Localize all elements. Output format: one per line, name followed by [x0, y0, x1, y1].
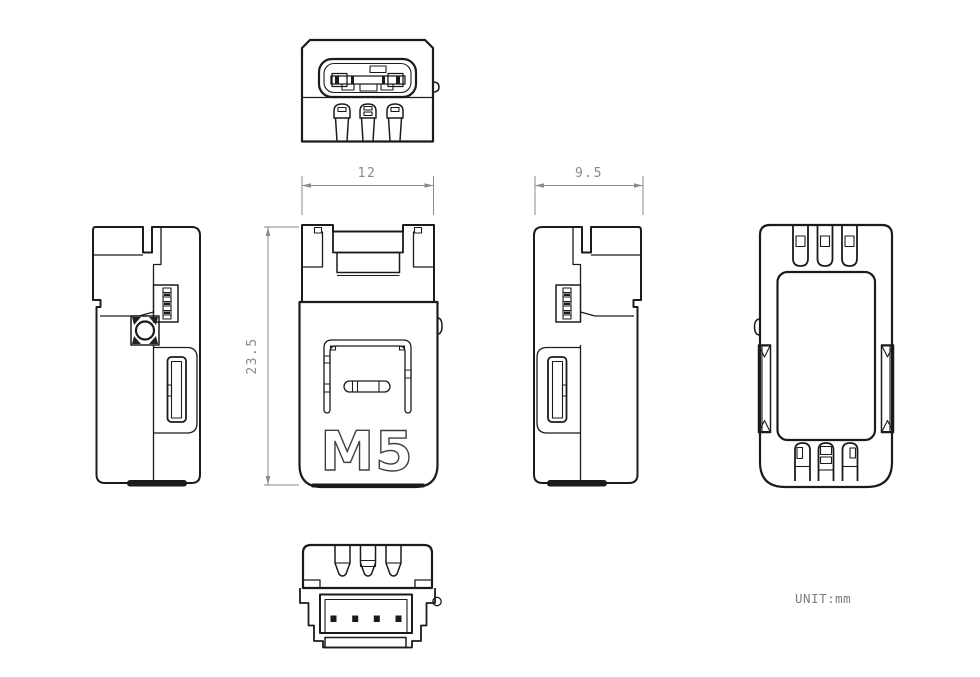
- left-side-view: [93, 227, 200, 487]
- back-top-slots: [793, 226, 857, 267]
- led-window-slot: [344, 381, 390, 392]
- button-frame: [324, 340, 411, 413]
- connector-block-side: [556, 285, 581, 322]
- back-bottom-tabs: [795, 443, 858, 481]
- grove-latch-slot: [325, 638, 406, 648]
- grove-connector: [300, 588, 441, 648]
- side-button-bump-bottom: [433, 597, 441, 605]
- bottom-view: [300, 545, 441, 648]
- side-slot-right: [548, 357, 567, 422]
- grove-pins: [331, 616, 402, 623]
- front-bottom-band: [311, 484, 425, 488]
- top-view: [302, 40, 439, 142]
- dimension-depth: 9.5: [535, 166, 643, 215]
- back-view: [755, 225, 894, 487]
- left-bottom-band: [127, 480, 187, 487]
- unit-label: UNIT:mm: [795, 591, 851, 606]
- pin-prongs-top: [334, 104, 403, 141]
- dimension-height-label: 23.5: [245, 337, 260, 374]
- front-view: M5: [300, 225, 443, 488]
- back-panel: [778, 272, 876, 440]
- pin-prongs-bottom: [335, 546, 401, 576]
- right-bottom-band: [547, 480, 607, 487]
- dimension-width-label: 12: [358, 166, 377, 181]
- side-button: [131, 316, 159, 345]
- usb-c-port-front: [333, 232, 403, 276]
- usb-plug-section: [302, 225, 434, 302]
- m5-module-orthographic-views: M5: [0, 0, 980, 677]
- usb-c-port-top: [319, 59, 416, 97]
- right-side-view: [534, 227, 641, 487]
- side-slot-left: [168, 357, 187, 422]
- dimension-depth-label: 9.5: [575, 166, 603, 181]
- technical-drawing-canvas: M5: [0, 0, 980, 677]
- dimension-height: 23.5: [245, 227, 299, 485]
- dimension-width: 12: [302, 166, 434, 215]
- m5-logo: M5: [320, 420, 413, 483]
